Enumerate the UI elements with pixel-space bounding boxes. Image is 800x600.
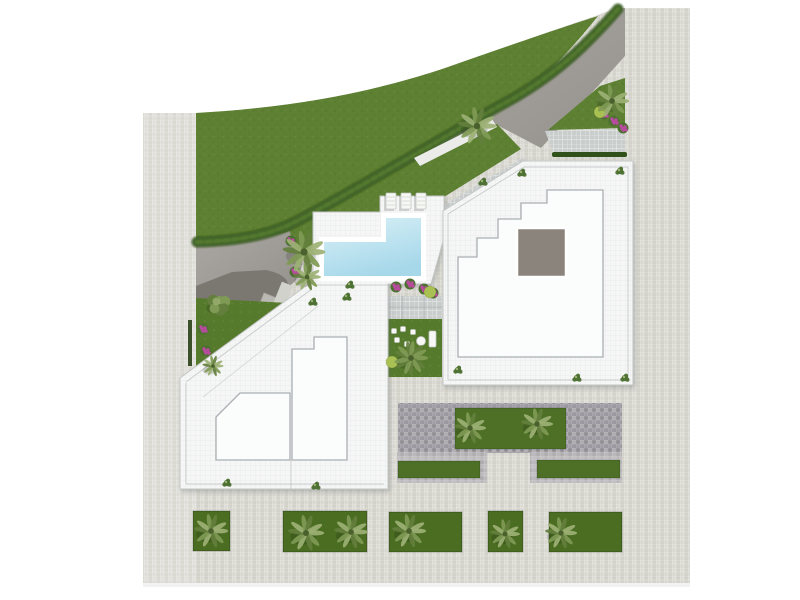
flower-bush (201, 346, 212, 357)
palm-crown (303, 530, 309, 536)
shrub-tuft (484, 182, 488, 186)
tree-canopy (220, 303, 229, 312)
sun-lounger (414, 193, 426, 211)
flower-cluster (203, 349, 206, 352)
flower-cluster (411, 284, 414, 287)
palm-crown (348, 529, 354, 535)
flower-bush (198, 324, 209, 335)
palm-crown (406, 528, 412, 534)
green-strip (537, 460, 620, 478)
garden-chair (401, 327, 406, 332)
flower-cluster (203, 326, 206, 329)
flower-cluster (614, 118, 617, 121)
flower-cluster (204, 329, 207, 332)
garden-chair (392, 329, 397, 334)
shrub-tuft (621, 171, 625, 175)
palm-crown (502, 531, 507, 536)
flower-cluster (397, 287, 400, 290)
flower-cluster (624, 128, 627, 131)
shrub-tuft (317, 486, 321, 490)
site-plan-canvas (0, 0, 800, 600)
tree-canopy (210, 304, 220, 314)
flower-bush (405, 279, 416, 290)
sun-lounger (384, 193, 396, 211)
roof-terrace (517, 228, 566, 277)
garden-chair (395, 338, 400, 343)
canopy-highlight (213, 298, 221, 306)
shrub-tuft (314, 302, 318, 306)
flower-cluster (207, 351, 210, 354)
palm-crown (474, 123, 480, 129)
shrub-highlight (456, 368, 458, 370)
site-edge-shadow (143, 583, 690, 587)
shrub-highlight (575, 376, 577, 378)
palm-crown (558, 530, 563, 535)
shrub-tuft (348, 297, 352, 301)
flower-cluster (206, 348, 209, 351)
shrub-tuft (351, 285, 355, 289)
shrub-highlight (225, 481, 227, 483)
shrub-tuft (626, 378, 630, 382)
palm-crown (300, 248, 307, 255)
shrub-tuft (523, 173, 527, 177)
flower-cluster (410, 281, 413, 284)
flower-cluster (611, 119, 614, 122)
loungers-layer (384, 193, 426, 211)
flower-cluster (396, 284, 399, 287)
hedge-wall (188, 320, 192, 366)
garden-table (417, 337, 426, 346)
shrub-highlight (345, 295, 347, 297)
site-plan-render (0, 0, 800, 600)
shrub-tuft (228, 483, 232, 487)
palm-crown (467, 425, 472, 430)
upper-walkway (545, 129, 625, 152)
flower-bush (391, 282, 402, 293)
sun-lounger (399, 193, 411, 211)
shrub-highlight (623, 376, 625, 378)
flower-bush (618, 123, 629, 134)
penthouse-roof-b (292, 337, 347, 460)
shrub-tuft (578, 378, 582, 382)
lime-bush (424, 286, 436, 298)
palm-crown (408, 355, 414, 361)
palm-crown (208, 528, 214, 534)
flower-cluster (623, 125, 626, 128)
palm-crown (211, 364, 215, 368)
shrub-highlight (520, 171, 522, 173)
flower-cluster (615, 121, 618, 124)
flower-bush (609, 116, 620, 127)
shrub-highlight (311, 300, 313, 302)
shrub-highlight (618, 169, 620, 171)
shrub-highlight (314, 484, 316, 486)
central-garden (388, 318, 442, 377)
flower-cluster (407, 282, 410, 285)
walkway-hedge-strip (552, 152, 627, 157)
flower-cluster (620, 126, 623, 129)
garden-bench (429, 331, 436, 347)
flower-cluster (200, 327, 203, 330)
green-strip (398, 461, 480, 478)
shrub-highlight (348, 283, 350, 285)
palm-crown (534, 421, 539, 426)
shrub-tuft (459, 370, 463, 374)
flower-cluster (393, 285, 396, 288)
palm-crown (609, 98, 615, 104)
shrub-highlight (481, 180, 483, 182)
garden-chair (411, 330, 416, 335)
palm-crown (305, 275, 310, 280)
